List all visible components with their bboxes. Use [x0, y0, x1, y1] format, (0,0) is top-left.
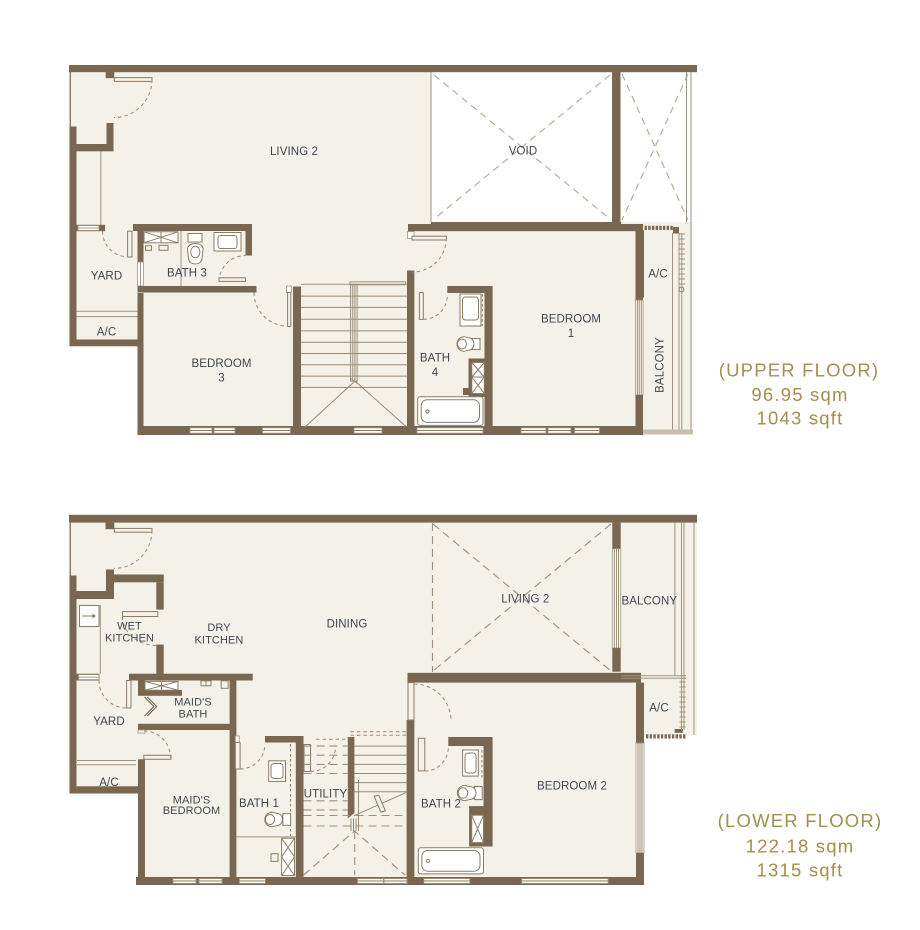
svg-text:1315 sqft: 1315 sqft — [757, 859, 844, 880]
svg-text:VOID: VOID — [509, 146, 538, 158]
svg-text:BATH 2: BATH 2 — [421, 799, 461, 811]
svg-text:BEDROOM: BEDROOM — [541, 314, 601, 326]
svg-text:WET: WET — [117, 621, 142, 633]
svg-text:A/C: A/C — [648, 269, 667, 281]
svg-text:3: 3 — [218, 373, 225, 385]
svg-text:96.95 sqm: 96.95 sqm — [751, 384, 848, 405]
svg-text:KITCHEN: KITCHEN — [195, 635, 244, 647]
svg-text:LIVING 2: LIVING 2 — [501, 594, 549, 606]
svg-text:UTILITY: UTILITY — [304, 789, 348, 801]
svg-text:BALCONY: BALCONY — [621, 596, 677, 608]
svg-text:BATH: BATH — [179, 709, 208, 721]
svg-text:MAID'S: MAID'S — [174, 697, 212, 709]
svg-text:BATH 1: BATH 1 — [239, 798, 279, 810]
svg-text:1: 1 — [568, 328, 575, 340]
svg-text:A/C: A/C — [649, 703, 668, 715]
svg-text:LIVING 2: LIVING 2 — [270, 146, 318, 158]
svg-text:YARD: YARD — [91, 271, 123, 283]
svg-text:A/C: A/C — [97, 327, 116, 339]
svg-text:DRY: DRY — [207, 622, 231, 634]
svg-text:BATH 3: BATH 3 — [167, 268, 207, 280]
svg-text:(LOWER FLOOR): (LOWER FLOOR) — [718, 810, 883, 831]
svg-text:KITCHEN: KITCHEN — [105, 633, 154, 645]
svg-text:YARD: YARD — [93, 716, 125, 728]
svg-text:BEDROOM: BEDROOM — [191, 358, 251, 370]
svg-text:A/C: A/C — [99, 777, 118, 789]
svg-text:BATH: BATH — [420, 353, 450, 365]
svg-text:1043 sqft: 1043 sqft — [757, 408, 844, 429]
svg-text:BEDROOM 2: BEDROOM 2 — [537, 781, 607, 793]
svg-text:DINING: DINING — [327, 619, 368, 631]
svg-text:(UPPER FLOOR): (UPPER FLOOR) — [719, 360, 880, 381]
svg-text:4: 4 — [432, 367, 439, 379]
svg-text:BEDROOM: BEDROOM — [163, 805, 221, 817]
svg-text:BALCONY: BALCONY — [655, 337, 667, 393]
svg-text:122.18 sqm: 122.18 sqm — [746, 836, 855, 857]
